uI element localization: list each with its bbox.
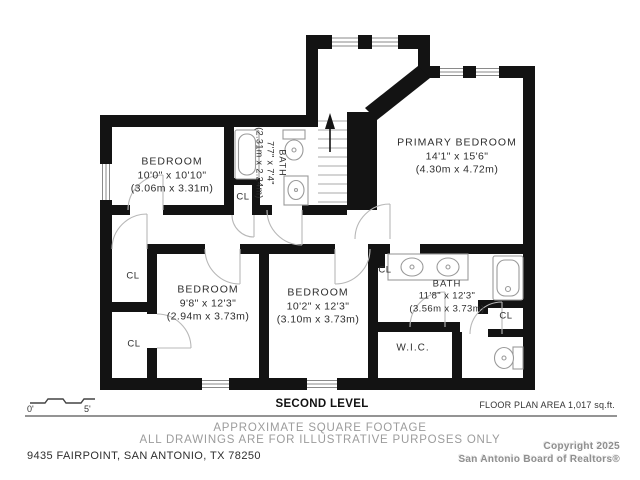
room-dims-m: (2.31m x 2.24m): [252, 127, 264, 199]
windows: [100, 35, 499, 390]
disclaimer-line-1: APPROXIMATE SQUARE FOOTAGE: [213, 422, 426, 434]
window: [100, 164, 112, 200]
window: [332, 35, 358, 49]
copyright-line-1: Copyright 2025: [458, 441, 620, 454]
room-dims-m: (3.56m x 3.73m): [409, 303, 484, 315]
room-dims-m: (4.30m x 4.72m): [397, 164, 517, 178]
level-title: SECOND LEVEL: [275, 398, 368, 410]
room-label-bath-2: BATH 11'8" x 12'3" (3.56m x 3.73m): [409, 278, 484, 315]
room-label-bath-1: BATH 7'7" x 7'4" (2.31m x 2.24m): [252, 127, 287, 199]
door-bath-closet: [232, 215, 254, 237]
scale-end-label: 5': [84, 404, 91, 414]
room-name: BATH: [409, 278, 484, 290]
window: [202, 378, 229, 390]
window: [440, 66, 463, 78]
room-dims-ft: 9'8" x 12'3": [167, 297, 249, 311]
window: [372, 35, 398, 49]
room-label-primary-bedroom: PRIMARY BEDROOM 14'1" x 15'6" (4.30m x 4…: [397, 137, 517, 178]
window: [476, 66, 499, 78]
room-name: BATH: [276, 127, 288, 199]
room-dims-m: (2.94m x 3.73m): [167, 311, 249, 325]
room-name: BEDROOM: [167, 284, 249, 298]
room-label-bedroom-3: BEDROOM 10'2" x 12'3" (3.10m x 3.73m): [277, 287, 359, 328]
room-dims-m: (3.10m x 3.73m): [277, 314, 359, 328]
closet-label: CL: [499, 311, 512, 322]
closet-label: CL: [236, 192, 249, 203]
address: 9435 FAIRPOINT, SAN ANTONIO, TX 78250: [27, 450, 261, 462]
door-bedroom-3: [335, 249, 370, 284]
diagonal-wall: [365, 66, 430, 120]
scale-bar: [30, 399, 95, 403]
room-name: BEDROOM: [277, 287, 359, 301]
room-name: BEDROOM: [131, 156, 213, 170]
closet-label: CL: [127, 339, 140, 350]
scale-start-label: 0': [27, 404, 34, 414]
window: [307, 378, 337, 390]
staircase: [318, 113, 347, 202]
floor-plan-page: PRIMARY BEDROOM 14'1" x 15'6" (4.30m x 4…: [0, 0, 640, 480]
copyright: Copyright 2025 San Antonio Board of Real…: [458, 441, 620, 466]
toilet: [495, 347, 524, 369]
room-name: PRIMARY BEDROOM: [397, 137, 517, 151]
room-dims-ft: 14'1" x 15'6": [397, 150, 517, 164]
room-label-bedroom-2: BEDROOM 9'8" x 12'3" (2.94m x 3.73m): [167, 284, 249, 325]
room-label-wic: W.I.C.: [396, 343, 429, 354]
room-dims-ft: 11'8" x 12'3": [409, 291, 484, 303]
room-label-bedroom-1: BEDROOM 10'0" x 10'10" (3.06m x 3.31m): [131, 156, 213, 197]
bathtub: [493, 256, 523, 300]
door-bedroom-2: [205, 249, 240, 284]
closet-label: CL: [126, 271, 139, 282]
copyright-line-2: San Antonio Board of Realtors®: [458, 454, 620, 467]
closet-label: CL: [378, 265, 391, 276]
door-closet-1: [112, 214, 147, 249]
double-vanity: [388, 254, 468, 280]
floor-plan-area-note: FLOOR PLAN AREA 1,017 sq.ft.: [479, 400, 615, 410]
room-dims-ft: 7'7" x 7'4": [264, 127, 276, 199]
disclaimer-line-2: ALL DRAWINGS ARE FOR ILLUSTRATIVE PURPOS…: [140, 434, 501, 446]
room-dims-ft: 10'0" x 10'10": [131, 169, 213, 183]
sink: [284, 176, 308, 205]
room-dims-ft: 10'2" x 12'3": [277, 300, 359, 314]
room-dims-m: (3.06m x 3.31m): [131, 183, 213, 197]
door-bath-1: [267, 210, 302, 245]
